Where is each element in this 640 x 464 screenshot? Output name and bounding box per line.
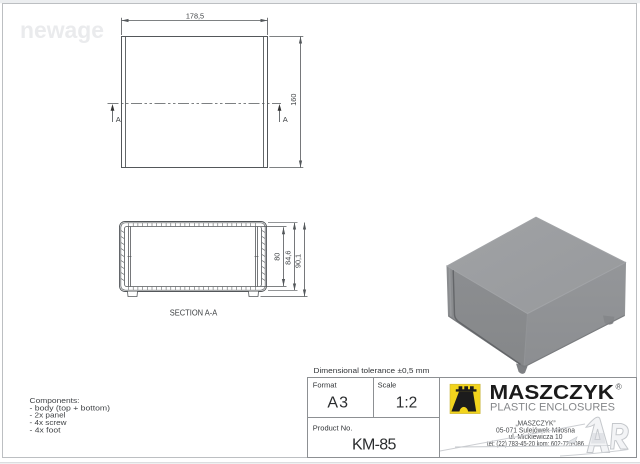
svg-text:160: 160 — [289, 94, 298, 106]
svg-text:Dimensional tolerance ±0,5 mm: Dimensional tolerance ±0,5 mm — [314, 366, 430, 375]
svg-text:1:2: 1:2 — [396, 395, 418, 412]
svg-text:80: 80 — [272, 253, 281, 261]
svg-text:SECTION A-A: SECTION A-A — [170, 309, 218, 318]
svg-text:PLASTIC ENCLOSURES: PLASTIC ENCLOSURES — [490, 401, 615, 413]
svg-text:Scale: Scale — [378, 381, 397, 390]
svg-text:newage: newage — [20, 17, 104, 43]
svg-text:A: A — [283, 115, 288, 124]
svg-text:Product No.: Product No. — [313, 423, 353, 432]
svg-text:- 4x foot: - 4x foot — [30, 425, 61, 434]
svg-text:90,1: 90,1 — [293, 254, 302, 268]
svg-text:A: A — [116, 115, 121, 124]
svg-text:A3: A3 — [327, 395, 349, 412]
svg-text:Format: Format — [313, 381, 338, 390]
svg-text:178,5: 178,5 — [186, 11, 204, 20]
svg-text:84,6: 84,6 — [283, 251, 292, 265]
svg-text:®: ® — [616, 382, 623, 392]
svg-text:KM-85: KM-85 — [352, 437, 397, 454]
